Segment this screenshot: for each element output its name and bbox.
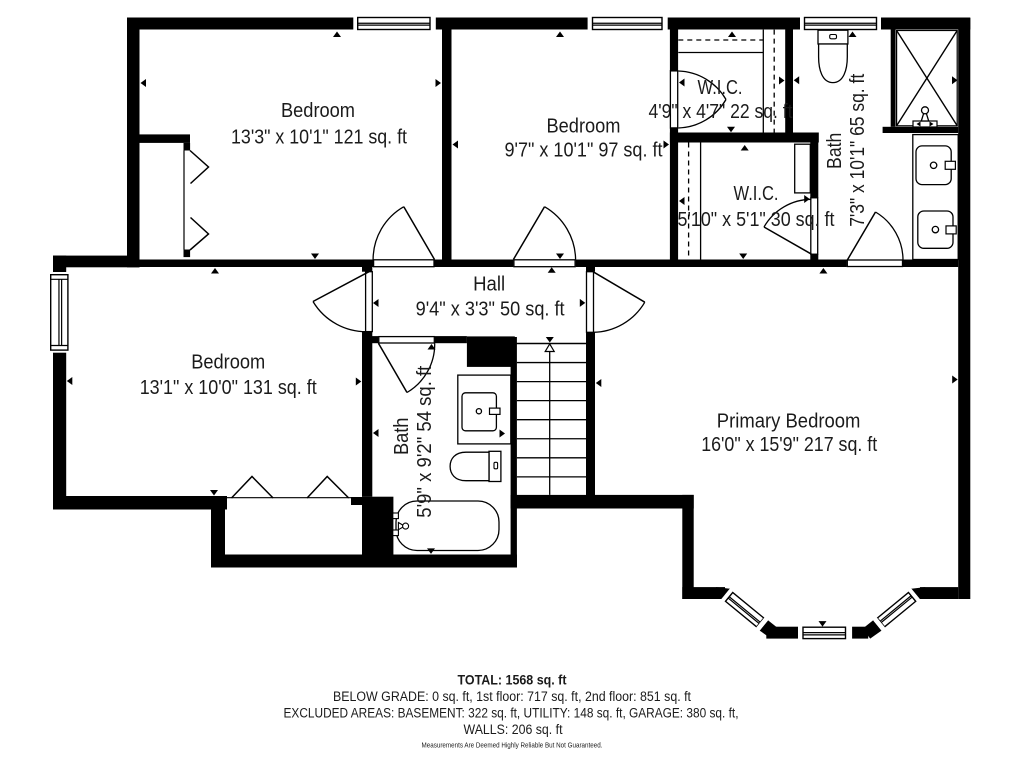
svg-text:EXCLUDED AREAS: BASEMENT: 322: EXCLUDED AREAS: BASEMENT: 322 sq. ft, UT… [284,706,739,721]
svg-text:13'3" x 10'1" 121 sq. ft: 13'3" x 10'1" 121 sq. ft [231,126,407,148]
svg-text:5'10" x 5'1" 30 sq. ft: 5'10" x 5'1" 30 sq. ft [678,209,835,231]
svg-text:Bedroom: Bedroom [281,99,355,122]
svg-text:13'1" x 10'0" 131 sq. ft: 13'1" x 10'0" 131 sq. ft [140,377,317,399]
svg-text:WALLS: 206 sq. ft: WALLS: 206 sq. ft [464,722,563,737]
svg-text:Bath: Bath [823,133,846,169]
svg-text:Bath: Bath [390,418,413,456]
svg-text:16'0" x 15'9" 217 sq. ft: 16'0" x 15'9" 217 sq. ft [701,434,877,456]
svg-text:7'3" x 10'1" 65 sq. ft: 7'3" x 10'1" 65 sq. ft [847,73,869,226]
svg-text:4'9" x 4'7" 22 sq. ft: 4'9" x 4'7" 22 sq. ft [649,101,793,123]
svg-text:9'7" x 10'1" 97 sq. ft: 9'7" x 10'1" 97 sq. ft [505,140,663,162]
svg-text:Primary Bedroom: Primary Bedroom [717,409,861,432]
svg-text:9'4" x 3'3" 50 sq. ft: 9'4" x 3'3" 50 sq. ft [416,299,565,321]
svg-text:W.I.C.: W.I.C. [698,76,743,99]
svg-text:5'9" x 9'2" 54 sq. ft: 5'9" x 9'2" 54 sq. ft [414,365,436,517]
svg-text:Bedroom: Bedroom [547,115,621,138]
svg-text:TOTAL: 1568 sq. ft: TOTAL: 1568 sq. ft [458,673,567,688]
svg-text:BELOW GRADE: 0 sq. ft, 1st flo: BELOW GRADE: 0 sq. ft, 1st floor: 717 sq… [333,689,691,704]
svg-text:Bedroom: Bedroom [191,350,265,373]
svg-text:Hall: Hall [473,272,505,295]
svg-text:W.I.C.: W.I.C. [734,182,779,205]
svg-text:Measurements Are Deemed Highly: Measurements Are Deemed Highly Reliable … [422,741,603,750]
